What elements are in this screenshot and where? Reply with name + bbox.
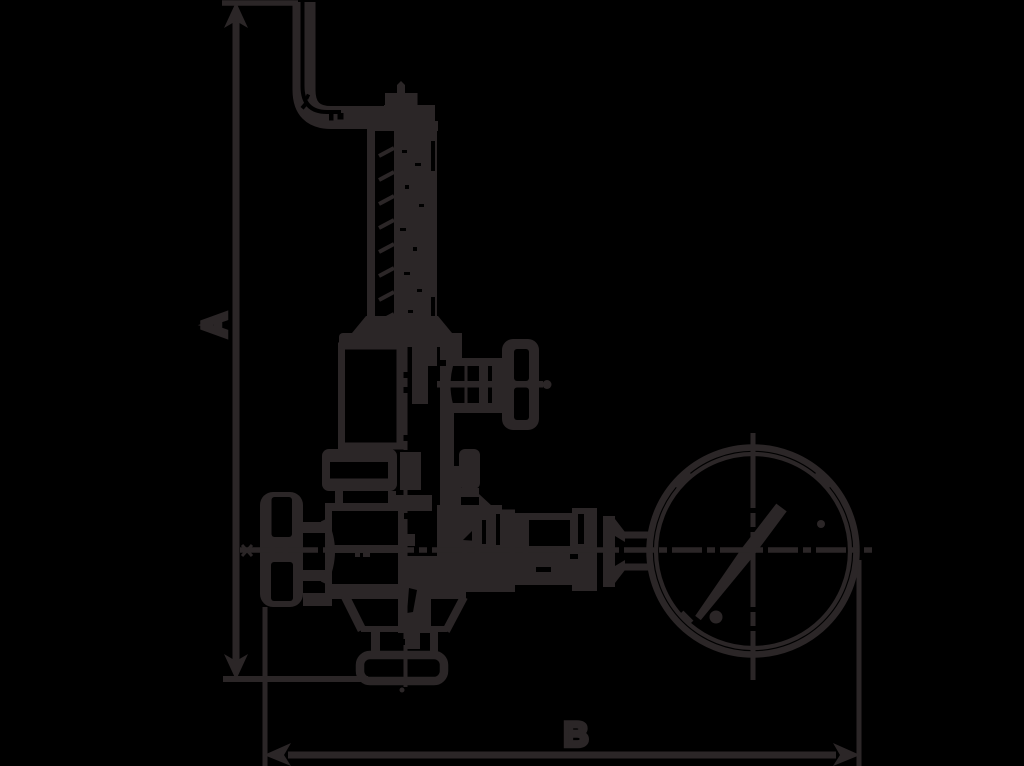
svg-text:B: B — [564, 716, 589, 754]
svg-text:A: A — [196, 313, 234, 338]
